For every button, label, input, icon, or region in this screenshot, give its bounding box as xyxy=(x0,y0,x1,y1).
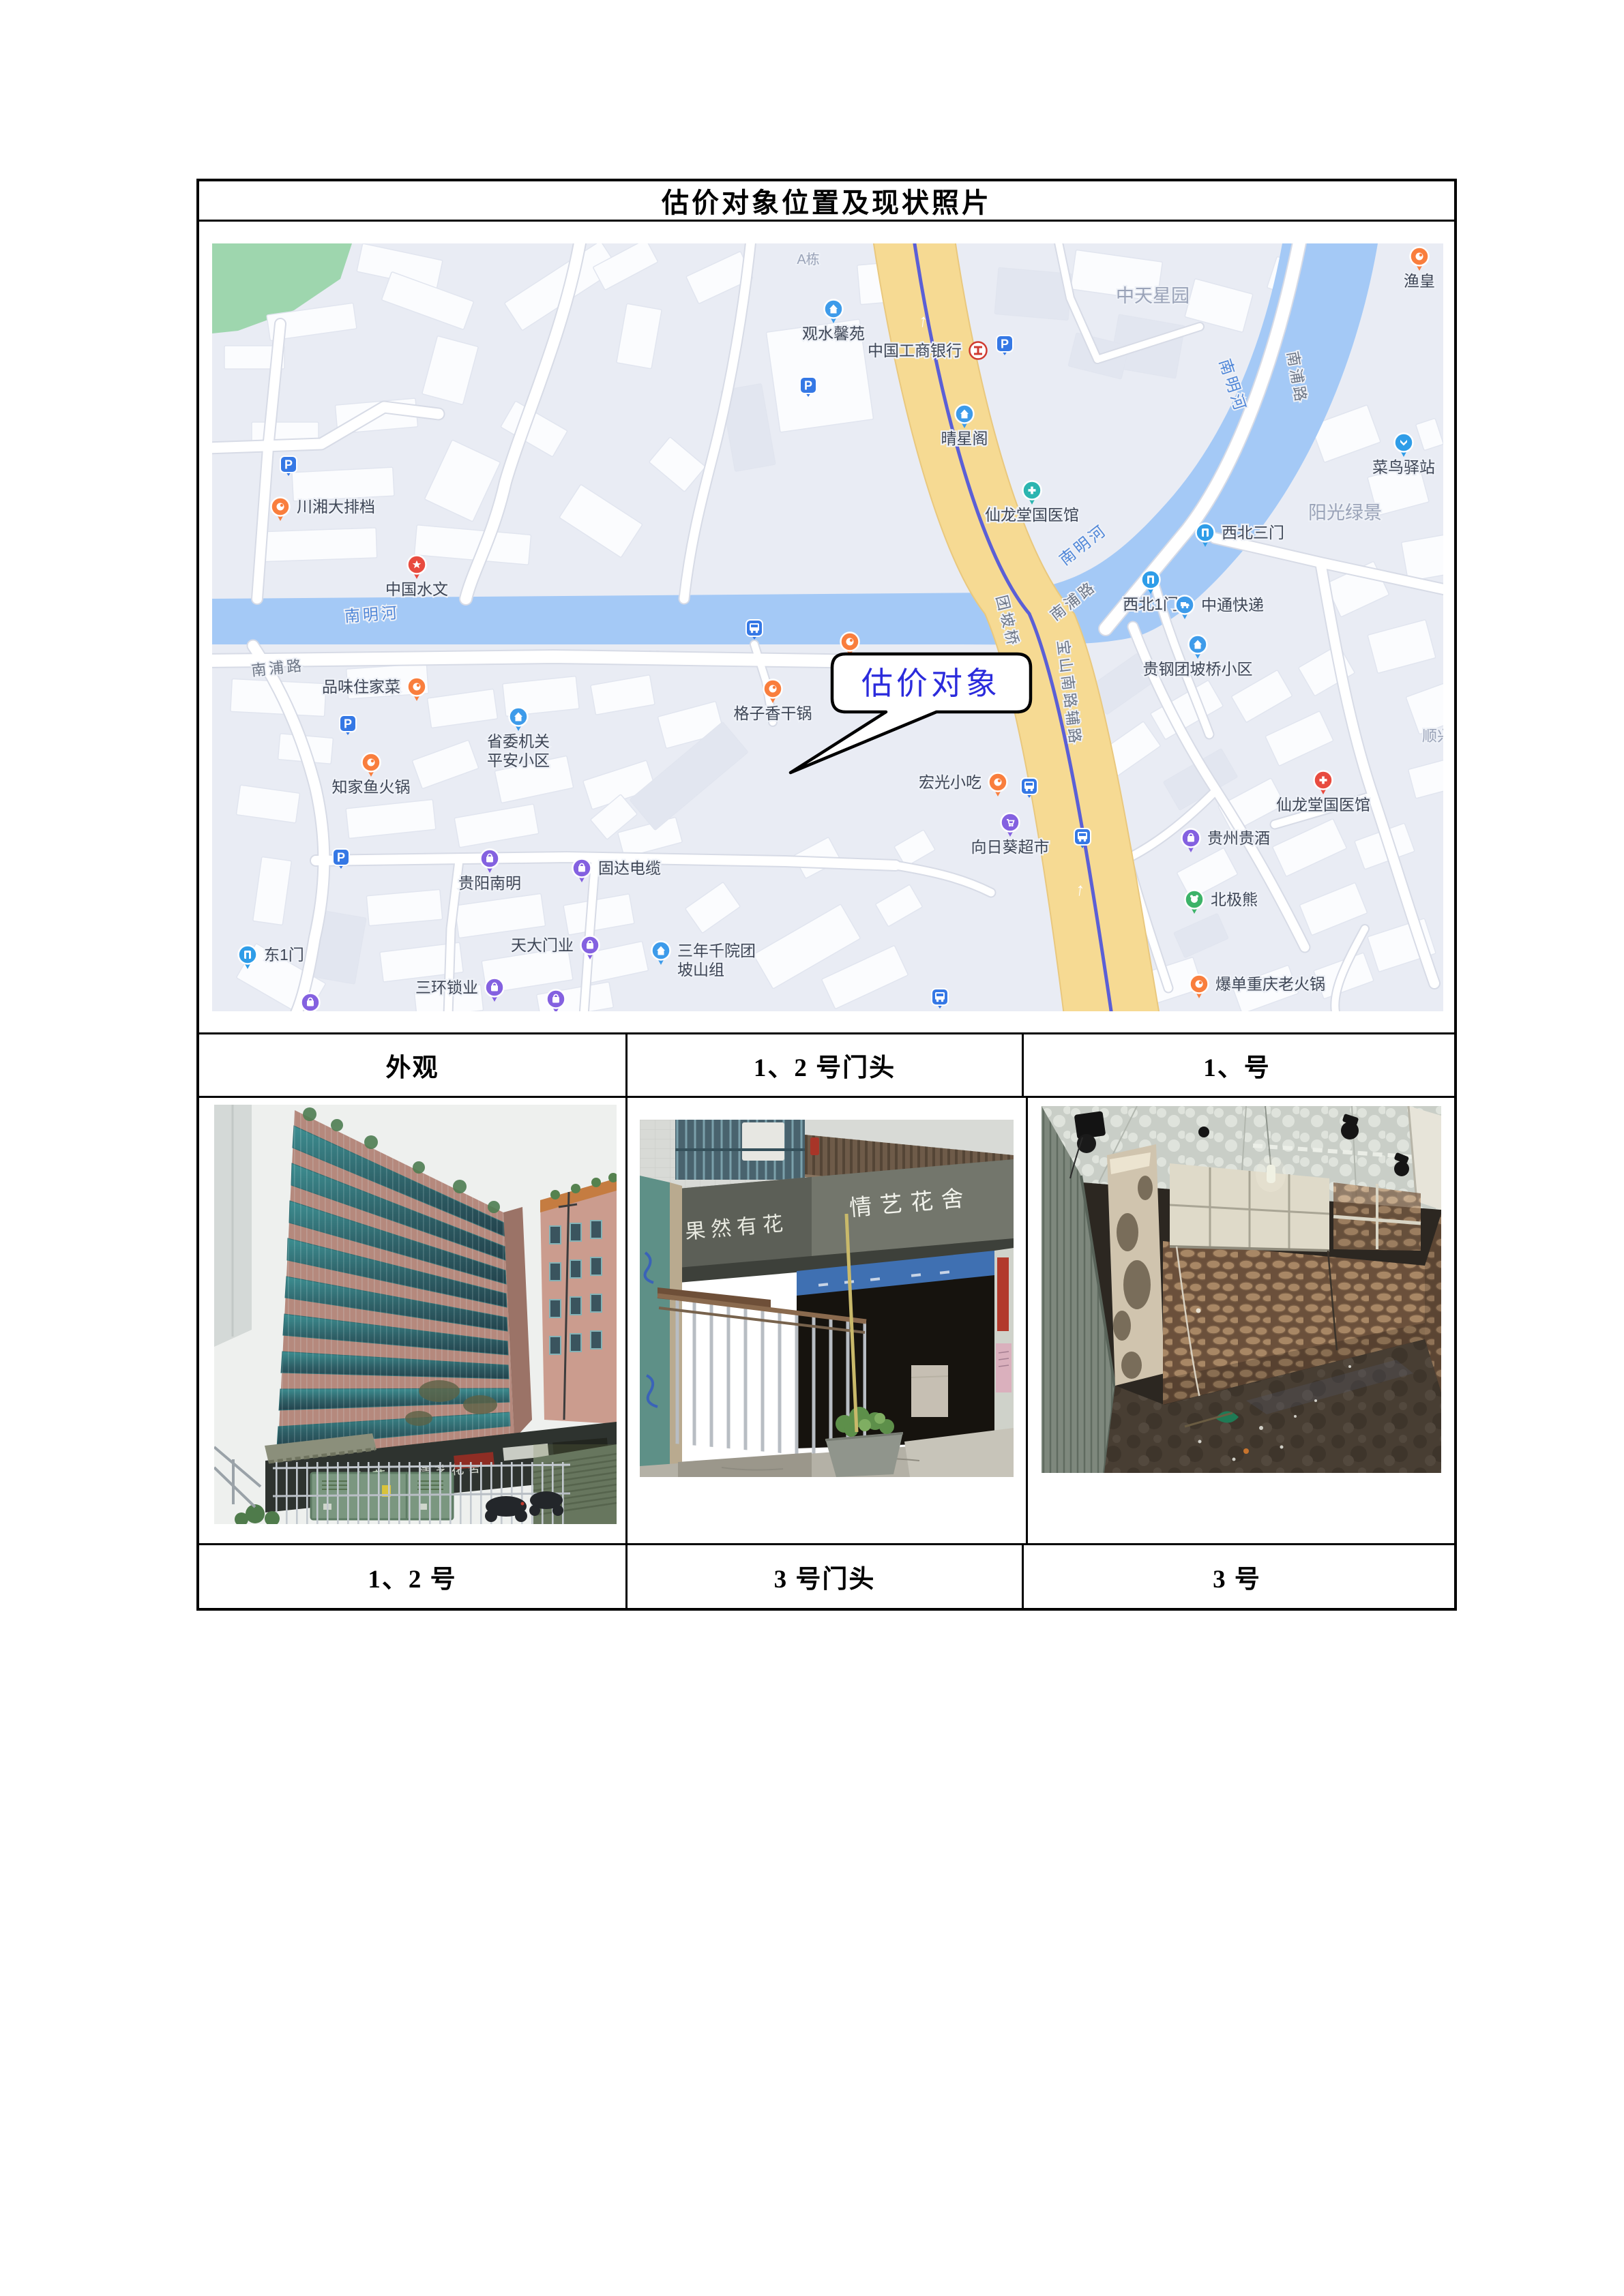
baodan-chongqing-laohuoguo-label: 爆单重庆老火锅 xyxy=(1215,975,1325,993)
photo-cell-interior xyxy=(1028,1098,1454,1543)
document-page: 估价对象位置及现状照片 ↑ ↑ P川湘大排档中国水文观水馨苑P中国工商银行P晴星… xyxy=(0,0,1624,2296)
zhongguo-shuiwen-label: 中国水文 xyxy=(385,580,448,598)
guizhou-guijiu-label: 贵州贵酒 xyxy=(1207,829,1270,847)
qingxingge-label: 晴星阁 xyxy=(941,430,988,447)
xianlongtang-guoyiguan-north-label: 仙龙堂国医馆 xyxy=(985,506,1079,524)
sannian-qianyuan-tuanposhanzu-label: 三年千院团 xyxy=(677,942,756,959)
pinwei-zhujiacai-label: 品味住家菜 xyxy=(322,678,400,696)
shop-marker-west[interactable] xyxy=(301,994,320,1012)
dong-1-men-label: 东1门 xyxy=(264,946,304,964)
xibei-sanmen-label: 西北三门 xyxy=(1222,524,1284,541)
svg-text:P: P xyxy=(344,717,352,731)
xiangrikui-chaoshi-label: 向日葵超市 xyxy=(971,838,1050,856)
yangguang-lvjing: 阳光绿景 xyxy=(1308,503,1382,523)
svg-text:P: P xyxy=(804,379,812,393)
zhongtong-kuaidi-label: 中通快递 xyxy=(1201,596,1264,614)
gezi-xiang-ganguo-label: 格子香干锅 xyxy=(734,704,812,722)
sanhuan-suoye-label: 三环锁业 xyxy=(415,979,478,996)
photo-cell-exterior: 果然有花 情艺花舍 xyxy=(199,1098,625,1543)
title-row: 估价对象位置及现状照片 xyxy=(199,181,1454,222)
photo-shop-interior xyxy=(1042,1106,1441,1473)
caption-door-1-2: 1、2 号门头 xyxy=(625,1034,1024,1096)
caption-door-3: 3 号门头 xyxy=(625,1545,1024,1608)
caption-row-top: 外观 1、2 号门头 1、号 xyxy=(199,1034,1454,1098)
guanshui-xinyuan-label: 观水馨苑 xyxy=(802,325,865,342)
caption-no-1-2: 1、2 号 xyxy=(199,1545,625,1608)
shengwei-jiguan-pingan-xiaoqu-label2: 平安小区 xyxy=(487,751,550,769)
xianlongtang-guoyiguan-south-label: 仙龙堂国医馆 xyxy=(1276,796,1370,814)
icbc-bank-label: 中国工商银行 xyxy=(868,342,962,359)
location-map[interactable]: ↑ ↑ P川湘大排档中国水文观水馨苑P中国工商银行P晴星阁仙龙堂国医馆渔皇菜鸟驿… xyxy=(212,243,1443,1011)
shunxing: 顺兴 xyxy=(1422,728,1443,745)
hongguang-xiaochi-label: 宏光小吃 xyxy=(919,773,981,791)
caption-row-bottom: 1、2 号 3 号门头 3 号 xyxy=(199,1545,1454,1608)
tianda-menye-label: 天大门业 xyxy=(511,936,574,954)
callout-appraisal-target: 估价对象 xyxy=(861,666,1001,701)
photo-storefront: 果然有花 情艺花舍 xyxy=(640,1120,1014,1477)
guiyang-nanming-label: 贵阳南明 xyxy=(458,874,521,892)
chuanxiang-dapaidang-label: 川湘大排档 xyxy=(297,498,375,516)
photo-table: 估价对象位置及现状照片 ↑ ↑ P川湘大排档中国水文观水馨苑P中国工商银行P晴星… xyxy=(196,179,1457,1611)
zhongtian-xingyuan: 中天星园 xyxy=(1116,286,1190,306)
photo-row: 果然有花 情艺花舍 xyxy=(199,1098,1454,1545)
beijixiong-label: 北极熊 xyxy=(1211,891,1258,908)
cainiao-yizhan-label: 菜鸟驿站 xyxy=(1372,458,1435,476)
sannian-qianyuan-tuanposhanzu-label2: 坡山组 xyxy=(677,961,724,979)
guigang-tuanpoqiao-xiaoqu-label: 贵钢团坡桥小区 xyxy=(1143,660,1253,678)
svg-text:P: P xyxy=(284,458,293,472)
guda-dianlan-label: 固达电缆 xyxy=(598,859,661,877)
zhijia-yu-huoguo-label: 知家鱼火锅 xyxy=(332,778,411,796)
shengwei-jiguan-pingan-xiaoqu-label: 省委机关 xyxy=(487,732,550,750)
yuhuang-label: 渔皇 xyxy=(1404,272,1435,290)
caption-no-3: 3 号 xyxy=(1024,1545,1450,1608)
a-dong: A栋 xyxy=(797,252,819,267)
page-title: 估价对象位置及现状照片 xyxy=(662,181,992,220)
photo-building-exterior: 果然有花 情艺花舍 xyxy=(214,1105,617,1524)
svg-text:P: P xyxy=(337,851,345,865)
icbc-bank[interactable] xyxy=(970,342,987,359)
caption-no-1: 1、号 xyxy=(1024,1034,1450,1096)
caption-exterior: 外观 xyxy=(199,1034,625,1096)
svg-text:P: P xyxy=(1001,338,1009,351)
photo-cell-storefront: 果然有花 情艺花舍 xyxy=(625,1098,1028,1543)
xibei-1-men-label: 西北1门 xyxy=(1123,595,1179,613)
map-row: ↑ ↑ P川湘大排档中国水文观水馨苑P中国工商银行P晴星阁仙龙堂国医馆渔皇菜鸟驿… xyxy=(199,222,1454,1034)
photo2-red-banner xyxy=(997,1257,1009,1331)
